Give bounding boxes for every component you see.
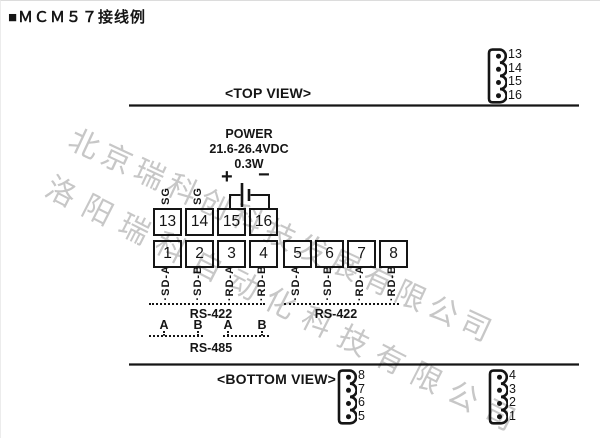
- connector-body-icon: [337, 369, 357, 425]
- pin-number: 8: [358, 369, 365, 383]
- power-title: POWER: [194, 127, 304, 142]
- battery-minus-sign: −: [258, 166, 270, 184]
- terminal-box-upper: 13: [153, 208, 182, 236]
- wiring-diagram-page: ■ＭＣＭ５７接线例 <TOP VIEW> 13 14 15 16 POWER 2…: [0, 0, 600, 438]
- terminal-box-lower: 7: [347, 240, 376, 268]
- signal-label: RD-A: [354, 265, 367, 301]
- signal-label: RD-B: [256, 265, 269, 301]
- power-wattage: 0.3W: [194, 157, 304, 172]
- pin-number: 5: [358, 410, 365, 424]
- rs422-right-label: RS-422: [306, 307, 366, 321]
- pin-number: 15: [508, 75, 522, 89]
- signal-label: SD-B: [192, 265, 205, 301]
- terminal-box-lower: 3: [217, 240, 246, 268]
- pin-number: 6: [358, 396, 365, 410]
- connector-body-icon: [487, 48, 507, 104]
- pin-number: 4: [509, 369, 516, 383]
- ab-label: B: [255, 318, 269, 332]
- connector-pin-numbers: 13 14 15 16: [508, 48, 522, 102]
- pin-number: 3: [509, 383, 516, 397]
- signal-label: SD-B: [322, 265, 335, 301]
- connector-pin-numbers: 4 3 2 1: [509, 369, 516, 423]
- pin-number: 2: [509, 396, 516, 410]
- terminal-box-lower: 6: [315, 240, 344, 268]
- power-voltage: 21.6-26.4VDC: [194, 142, 304, 157]
- connector-bottom-right: 4 3 2 1: [488, 369, 516, 425]
- terminal-box-lower: 8: [379, 240, 408, 268]
- sg-label: SG: [160, 187, 173, 205]
- rs485-label: RS-485: [181, 341, 241, 355]
- signal-label: RD-B: [386, 265, 399, 301]
- terminal-box-lower: 1: [153, 240, 182, 268]
- power-label-block: POWER 21.6-26.4VDC 0.3W: [194, 127, 304, 172]
- ab-label: A: [221, 318, 235, 332]
- pin-number: 7: [358, 383, 365, 397]
- battery-negative-wire: [251, 195, 270, 209]
- pin-number: 13: [508, 48, 522, 62]
- terminal-box-lower: 5: [283, 240, 312, 268]
- terminal-box-upper: 16: [249, 208, 278, 236]
- ab-label: A: [157, 318, 171, 332]
- rs485-bracket-line-left: [149, 335, 203, 337]
- terminal-box-upper: 14: [185, 208, 214, 236]
- rs485-bracket-line-right: [223, 335, 269, 337]
- signal-label: RD-A: [224, 265, 237, 301]
- signal-label: SD-A: [290, 265, 303, 301]
- pin-number: 1: [509, 410, 516, 424]
- ab-label: B: [191, 318, 205, 332]
- rs422-right-bracket-line: [284, 303, 399, 305]
- pin-number: 16: [508, 89, 522, 103]
- bottom-view-label: <BOTTOM VIEW>: [217, 371, 336, 387]
- signal-label: SD-A: [160, 265, 173, 301]
- pin-number: 14: [508, 62, 522, 76]
- connector-bottom-left: 8 7 6 5: [337, 369, 365, 425]
- terminal-box-lower: 4: [249, 240, 278, 268]
- top-view-label: <TOP VIEW>: [225, 85, 311, 101]
- terminal-box-upper: 15: [217, 208, 246, 236]
- connector-body-icon: [488, 369, 508, 425]
- sg-label: SG: [192, 187, 205, 205]
- rs422-left-bracket-line: [149, 303, 265, 305]
- battery-plus-sign: +: [221, 168, 233, 186]
- battery-positive-wire: [230, 195, 241, 209]
- terminal-box-lower: 2: [185, 240, 214, 268]
- connector-pin-numbers: 8 7 6 5: [358, 369, 365, 423]
- connector-top-right: 13 14 15 16: [487, 48, 522, 104]
